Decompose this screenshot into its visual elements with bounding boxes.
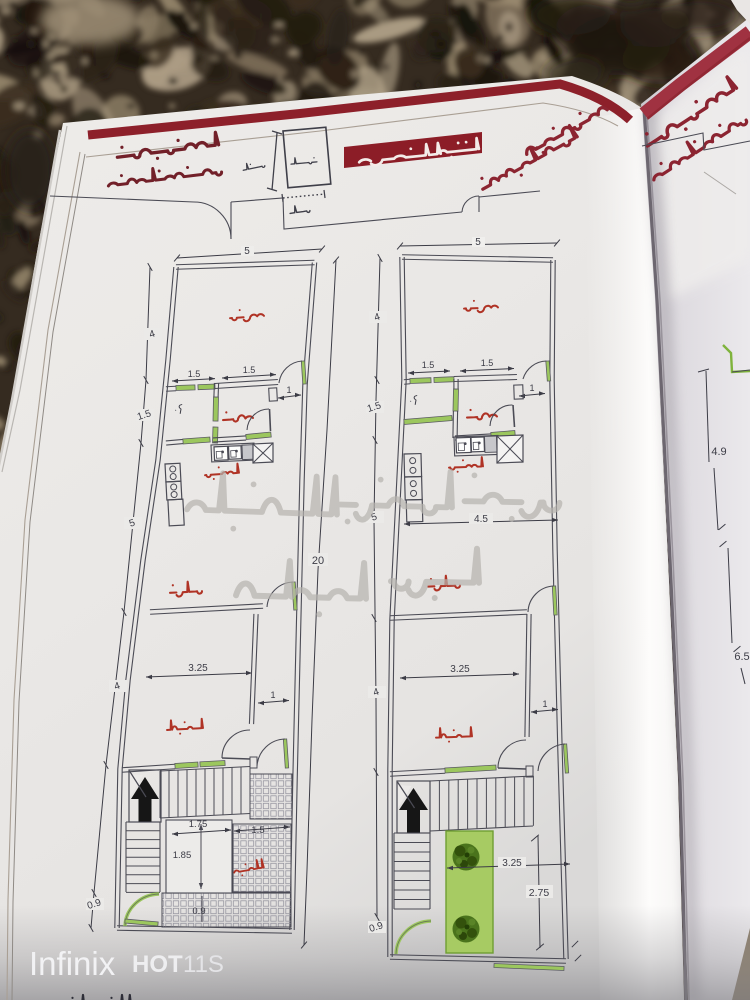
svg-text:HOT: HOT: [132, 951, 183, 978]
svg-text:1.85: 1.85: [173, 850, 192, 861]
svg-text:1: 1: [270, 690, 275, 700]
svg-text:20: 20: [312, 555, 324, 567]
svg-text:6.5: 6.5: [734, 651, 749, 663]
svg-text:1.5: 1.5: [243, 365, 256, 375]
svg-text:11S: 11S: [183, 951, 224, 978]
svg-text:3.25: 3.25: [502, 858, 522, 869]
svg-text:5: 5: [475, 237, 481, 248]
svg-text:5: 5: [244, 246, 250, 257]
svg-text:1: 1: [286, 385, 291, 395]
svg-text:1.5: 1.5: [251, 825, 264, 836]
svg-text:1: 1: [529, 383, 534, 393]
svg-text:1.5: 1.5: [422, 360, 435, 370]
svg-text:Infinix: Infinix: [29, 945, 116, 982]
svg-text:1.5: 1.5: [481, 358, 494, 368]
svg-text:1: 1: [542, 699, 547, 709]
svg-text:1.5: 1.5: [188, 369, 201, 379]
svg-text:0.9: 0.9: [192, 906, 205, 917]
svg-text:3.25: 3.25: [188, 663, 208, 674]
svg-text:1.75: 1.75: [189, 819, 208, 830]
svg-text:4.5: 4.5: [474, 514, 488, 525]
svg-text:2.75: 2.75: [529, 887, 550, 899]
svg-text:4.9: 4.9: [711, 446, 726, 458]
svg-text:3.25: 3.25: [450, 664, 470, 675]
